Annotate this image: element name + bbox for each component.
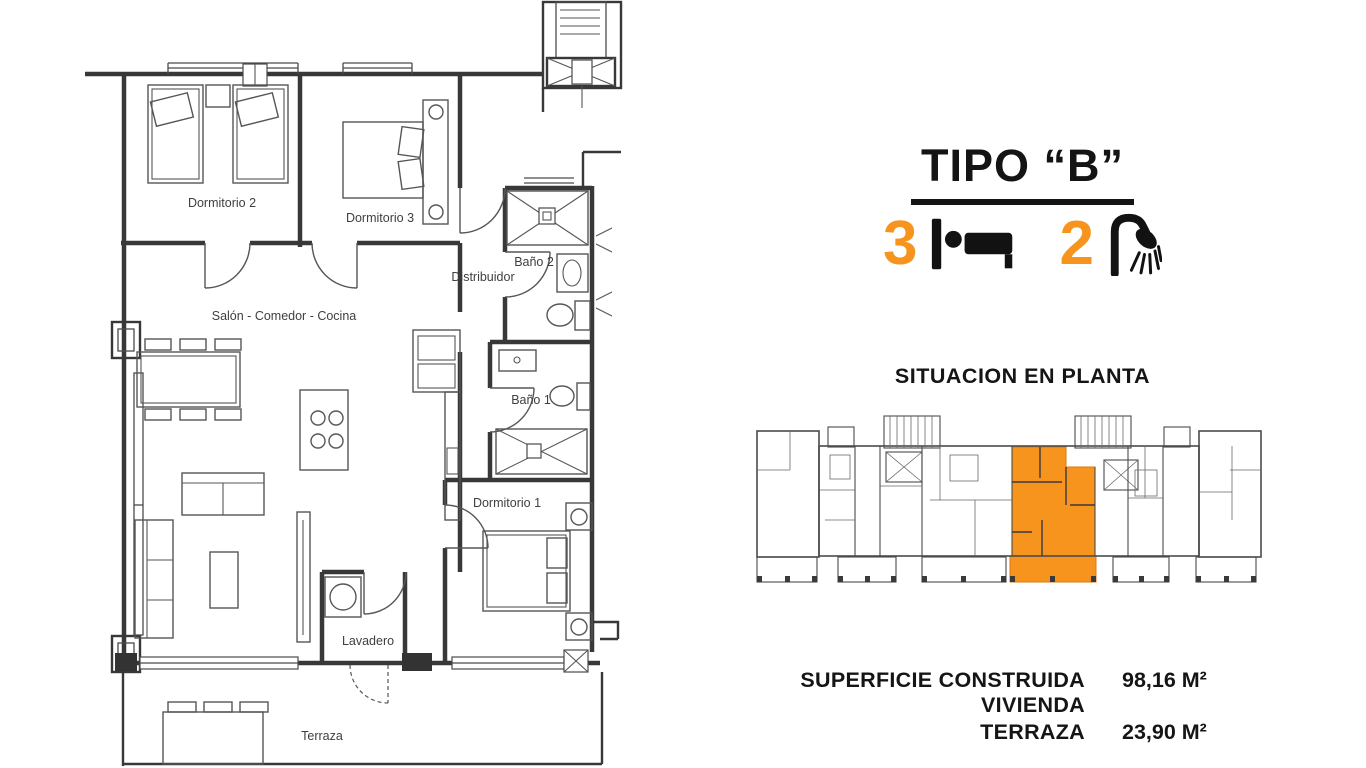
stair-shaft: [543, 2, 621, 108]
terraces-row: [757, 557, 1256, 582]
situation-plan: [750, 410, 1320, 605]
salon-furniture: [135, 339, 264, 638]
dormitorio2-furniture: [148, 85, 288, 183]
room-label-bano2: Baño 2: [514, 255, 554, 269]
area-label-vivienda: SUPERFICIE CONSTRUIDA VIVIENDA: [700, 668, 1085, 718]
exterior-walls: [85, 74, 621, 663]
bano1-fixtures: [496, 350, 590, 474]
room-label-dormitorio3: Dormitorio 3: [346, 211, 414, 225]
window-top: [168, 63, 574, 183]
plan-type-title-text: TIPO “B”: [911, 140, 1134, 205]
room-label-distribuidor: Distribuidor: [451, 270, 514, 284]
room-label-lavadero: Lavadero: [342, 634, 394, 648]
room-label-dormitorio1: Dormitorio 1: [473, 496, 541, 510]
situacion-title: SITUACION EN PLANTA: [820, 364, 1225, 389]
doors: [205, 188, 550, 703]
apartment-floor-plan: Dormitorio 2 Dormitorio 3 Baño 2 Distrib…: [0, 0, 700, 768]
bed-icon: [930, 217, 1016, 271]
left-wall-columns: [112, 322, 143, 672]
plan-type-title: TIPO “B”: [820, 140, 1225, 205]
building-outline: [757, 427, 1261, 557]
unit-dividers: [757, 431, 1261, 556]
highlighted-unit: [1010, 447, 1096, 582]
room-label-salon: Salón - Comedor - Cocina: [212, 309, 357, 323]
terraza-structure: [123, 672, 602, 766]
area-label-terraza: TERRAZA: [700, 720, 1085, 745]
room-label-terraza: Terraza: [301, 729, 343, 743]
area-value-terraza: 23,90 M²: [1122, 720, 1207, 745]
area-row-terraza: TERRAZA 23,90 M²: [700, 720, 1220, 745]
interior-walls: [121, 74, 592, 663]
dormitorio3-furniture: [343, 100, 448, 224]
bathrooms-count: 2: [1060, 213, 1094, 275]
bedrooms-count: 3: [883, 213, 917, 275]
shower-icon: [1106, 212, 1162, 276]
lavadero-furniture: [325, 577, 361, 617]
room-label-dormitorio2: Dormitorio 2: [188, 196, 256, 210]
dormitorio1-furniture: [483, 503, 592, 640]
area-value-vivienda: 98,16 M²: [1122, 668, 1207, 693]
brochure-page: Dormitorio 2 Dormitorio 3 Baño 2 Distrib…: [0, 0, 1366, 768]
room-label-bano1: Baño 1: [511, 393, 551, 407]
features-row: 3 2: [845, 206, 1200, 282]
area-row-vivienda: SUPERFICIE CONSTRUIDA VIVIENDA 98,16 M²: [700, 668, 1220, 718]
